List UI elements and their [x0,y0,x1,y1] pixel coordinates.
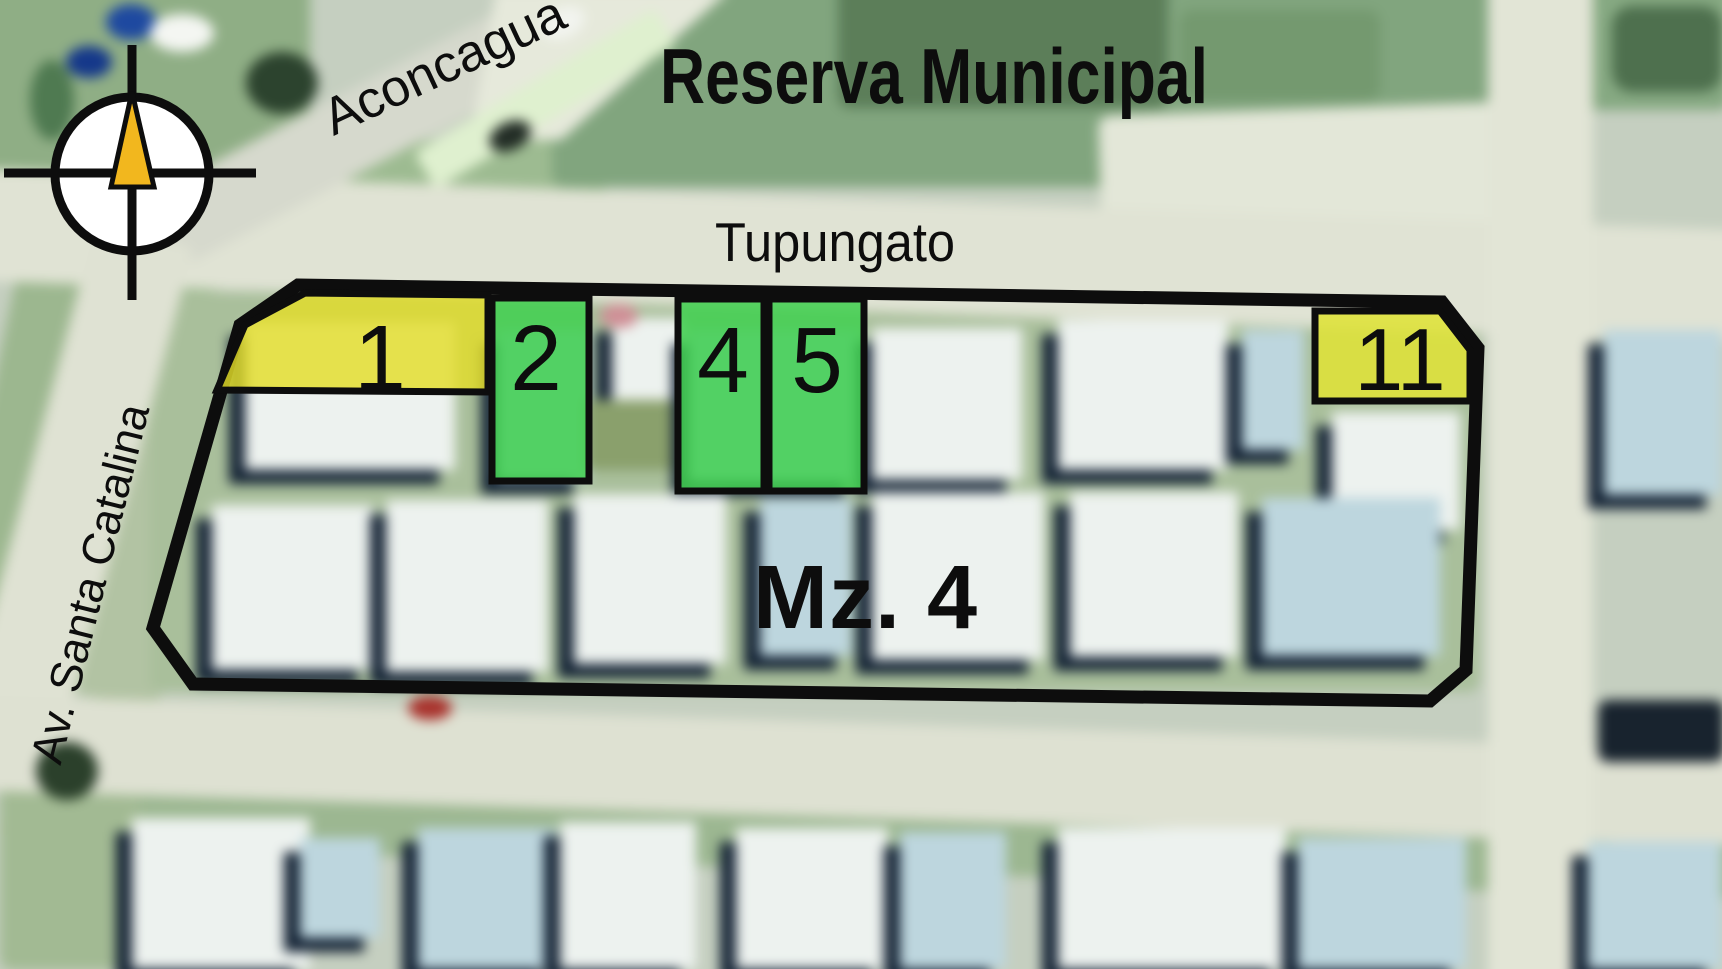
house [418,828,556,969]
label-reserva-municipal: Reserva Municipal [660,36,1208,118]
house [1070,492,1238,657]
house [1604,330,1722,495]
grass-reserva-mid-patch [1180,10,1380,100]
house [212,505,374,670]
lot-number-5: 5 [762,295,872,425]
house [1242,330,1304,450]
lot-number-11: 11 [1345,295,1455,425]
car-blob-red [408,696,452,720]
car-blob-blue [106,4,156,40]
road-right [1488,0,1593,969]
house [872,328,1022,480]
roof-blob-pink [600,304,638,328]
house [1588,842,1722,969]
house [736,828,888,969]
tree-blob [246,52,318,114]
house [574,494,726,664]
house [900,832,1006,969]
satellite-background [0,0,1722,969]
block-label-mz4: Mz. 4 [753,551,978,646]
car-blob-blue [66,46,112,78]
house [1298,838,1466,969]
trees-top-right-corner [1612,6,1722,92]
house [1058,828,1286,969]
tree-blob [30,60,74,140]
site-plan-map: Reserva Municipal Aconcagua Tupungato Av… [0,0,1722,969]
house [560,822,696,969]
shadow-patch [1598,700,1722,762]
truck-blob-white [150,14,214,52]
house [386,500,548,672]
house [300,838,380,938]
house [1058,320,1228,470]
house [132,818,310,969]
lot-number-2: 2 [481,293,591,423]
house [1262,498,1440,656]
lot-number-1: 1 [325,293,435,423]
street-label-tupungato: Tupungato [715,214,955,272]
